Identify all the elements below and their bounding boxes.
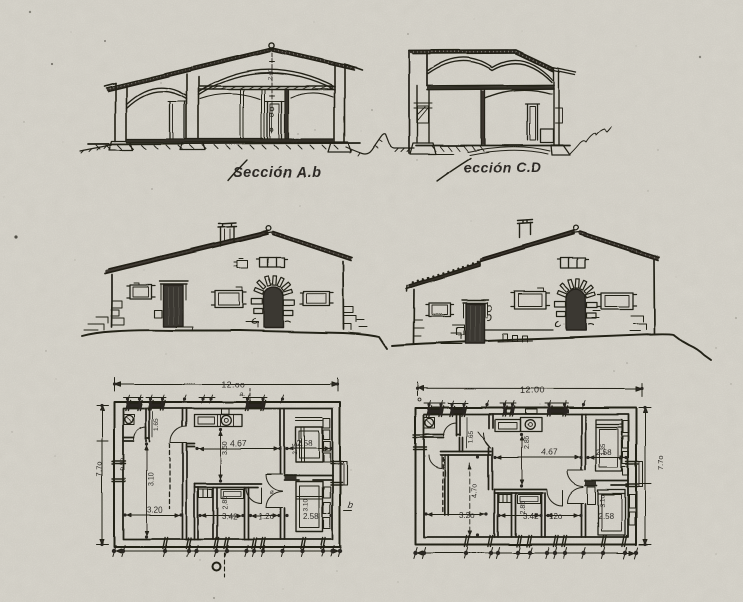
- svg-text:a.: a.: [240, 391, 246, 398]
- svg-text:4.7o: 4.7o: [471, 484, 478, 498]
- svg-text:2.45: 2.45: [293, 443, 299, 455]
- svg-text:3.10: 3.10: [303, 498, 310, 511]
- svg-text:2.58: 2.58: [297, 439, 313, 448]
- svg-text:1.2o: 1.2o: [259, 512, 275, 521]
- svg-text:2.85: 2.85: [223, 496, 230, 510]
- svg-text:ección C.D: ección C.D: [464, 159, 541, 175]
- svg-text:3.42: 3.42: [523, 512, 539, 521]
- svg-text:12.oo: 12.oo: [222, 379, 246, 389]
- svg-text:ø: ø: [270, 490, 274, 496]
- svg-text:3.1o: 3.1o: [600, 494, 607, 507]
- svg-text:1.35: 1.35: [601, 443, 607, 455]
- svg-text:12.00: 12.00: [520, 385, 545, 395]
- svg-text:3.10: 3.10: [148, 473, 155, 487]
- svg-text:2.58: 2.58: [598, 512, 614, 521]
- svg-text:3.2o: 3.2o: [459, 511, 475, 520]
- svg-text:4.67: 4.67: [541, 447, 558, 457]
- svg-text:4.67: 4.67: [230, 438, 247, 448]
- svg-text:3.42: 3.42: [222, 512, 238, 521]
- svg-text:2.58: 2.58: [303, 512, 319, 521]
- svg-text:7.7o: 7.7o: [656, 455, 665, 470]
- svg-text:2.40: 2.40: [268, 69, 274, 80]
- svg-text:1.65: 1.65: [154, 418, 161, 431]
- svg-text:12o: 12o: [549, 512, 563, 521]
- svg-text:3.50: 3.50: [222, 441, 229, 455]
- svg-text:3.20: 3.20: [147, 506, 163, 515]
- svg-text:b: b: [348, 500, 353, 511]
- svg-text:7.7o: 7.7o: [95, 461, 104, 476]
- svg-text:2.86: 2.86: [524, 436, 531, 450]
- svg-text:Sección A.b: Sección A.b: [233, 165, 321, 181]
- svg-text:1.65: 1.65: [468, 430, 475, 443]
